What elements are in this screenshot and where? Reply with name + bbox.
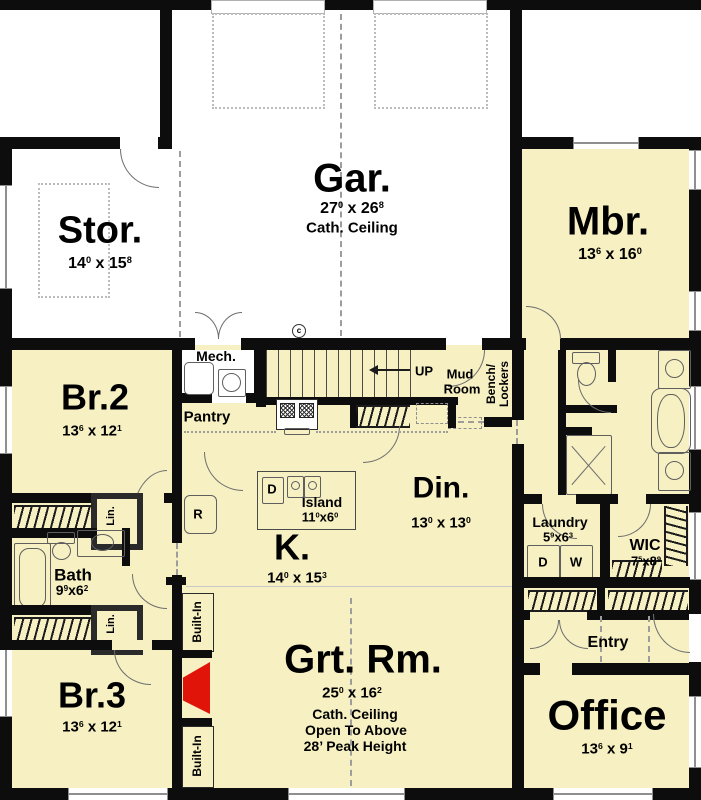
room-label-gar: Gar. [313, 159, 391, 200]
window [68, 788, 168, 800]
room-label-mbr: Mbr. [567, 202, 649, 243]
counter-edge [316, 431, 448, 433]
wall [566, 427, 592, 435]
burner-icon [280, 403, 295, 418]
toilet-icon [577, 362, 596, 386]
closet-rod-hatch [664, 506, 688, 566]
room-dim-dining: 130 x 130 [411, 515, 471, 530]
room-label-kitchen: K. [274, 530, 310, 567]
cased-opening [516, 420, 518, 444]
bathtub-icon [657, 394, 685, 448]
wall [608, 350, 616, 382]
wall [448, 397, 456, 428]
stair-direction-arrow [378, 369, 410, 371]
window [0, 185, 12, 289]
sink-icon [665, 359, 684, 378]
door-arc [120, 149, 159, 188]
sink-icon [91, 534, 114, 551]
linen-label: Lin. [105, 506, 117, 526]
room-dim-br2: 136 x 121 [62, 423, 122, 438]
wall [172, 575, 182, 788]
door-opening [526, 338, 560, 350]
wall [558, 350, 566, 412]
room-dim-laundry: 59x63 [543, 530, 573, 543]
window [553, 788, 653, 800]
room-label-laundry: Laundry [532, 515, 587, 529]
wall [524, 494, 542, 504]
room-note-grt: Open To Above [305, 723, 407, 737]
window [689, 150, 701, 190]
room-label-pantry: Pantry [184, 409, 231, 424]
wall [160, 0, 172, 149]
room-label-grt: Grt. Rm. [284, 640, 442, 681]
wall [572, 663, 690, 675]
toilet-icon [52, 542, 71, 560]
room-note-grt: 28’ Peak Height [304, 739, 407, 753]
mud-bench-outline [416, 403, 448, 424]
room-dim-wic: 75x89 [631, 554, 661, 567]
wall [510, 0, 522, 350]
refrigerator-label: R [193, 507, 202, 520]
sink-icon [665, 461, 684, 480]
window [0, 386, 12, 454]
room-dim-mbr: 136 x 160 [578, 247, 642, 263]
floor-plan: UP D W [0, 0, 701, 800]
wall [576, 494, 618, 504]
wall [512, 663, 540, 675]
wall [241, 338, 446, 350]
wall [512, 577, 690, 588]
cased-opening [176, 543, 178, 575]
room-label-stor: Stor. [58, 212, 142, 251]
built-in-label: Built-In [190, 601, 204, 642]
dishwasher-label: D [267, 482, 276, 495]
room-label-entry: Entry [588, 635, 629, 651]
cased-opening [458, 421, 484, 423]
room-dim-grt: 250 x 162 [322, 685, 382, 700]
garage-door-2 [373, 0, 487, 14]
door-opening [112, 640, 152, 650]
room-dim-bath: 99x62 [56, 583, 88, 597]
wall [177, 650, 212, 658]
door-opening [122, 566, 130, 606]
sink-icon [291, 481, 300, 490]
dryer-label: D [538, 555, 547, 568]
garage-door-track [374, 13, 488, 109]
room-label-island: Island [302, 495, 342, 509]
wall [0, 0, 701, 10]
ceiling-break-line [648, 616, 650, 662]
closet-rod-hatch [608, 590, 688, 612]
door-arc [195, 312, 219, 339]
room-label-wic: WIC [629, 538, 660, 554]
window [573, 137, 639, 149]
wall [512, 350, 524, 420]
stair-up-label: UP [415, 364, 433, 377]
front-door-opening [689, 614, 701, 662]
bathtub-icon [19, 548, 46, 608]
wall [512, 610, 530, 620]
stor-garage-divider [179, 151, 181, 337]
door-opening [120, 137, 158, 149]
room-label-mud: Mud [447, 367, 474, 380]
arrow-icon [369, 365, 378, 375]
water-heater-icon [184, 362, 214, 395]
room-dim-gar: 270 x 268 [320, 201, 384, 217]
window [0, 645, 12, 717]
room-dim-stor: 140 x 158 [68, 256, 132, 272]
room-label-mech: Mech. [196, 349, 236, 363]
room-dim-kitchen: 140 x 153 [267, 570, 327, 585]
room-label-office: Office [547, 695, 666, 738]
burner-icon [299, 403, 314, 418]
wall [600, 494, 610, 578]
wall [558, 413, 566, 495]
room-dim-br3: 136 x 121 [62, 719, 122, 734]
bench-lockers-label: Bench/ [484, 364, 498, 404]
linen-label: Lin. [105, 614, 117, 634]
closet-rod-hatch [528, 590, 596, 612]
room-label-br2: Br.2 [61, 380, 129, 417]
room-note-grt: Cath. Ceiling [312, 707, 398, 721]
door-arc [218, 312, 242, 339]
room-label-mud: Room [444, 382, 481, 395]
closet-rod-hatch [356, 405, 410, 428]
shower-icon [566, 435, 612, 495]
built-in-label: Built-In [190, 735, 204, 776]
wall [166, 577, 186, 585]
ceiling-break-line [186, 586, 512, 587]
garage-door-track [212, 13, 325, 109]
wall [484, 417, 512, 427]
stair-treads [266, 350, 412, 397]
garage-door-1 [211, 0, 325, 14]
wall [597, 588, 605, 610]
room-dim-island: 110x60 [302, 510, 339, 523]
bench-lockers-label: Lockers [497, 361, 511, 407]
room-dim-office: 136 x 91 [581, 741, 632, 756]
room-note-gar: Cath. Ceiling [306, 220, 398, 235]
window [689, 512, 701, 580]
window [288, 788, 405, 800]
keynote-c: c [292, 324, 306, 338]
closet-rod-hatch [14, 617, 92, 642]
sink-icon [308, 481, 317, 490]
washer-label: W [570, 555, 582, 568]
room-label-br3: Br.3 [58, 678, 126, 715]
room-label-dining: Din. [413, 474, 470, 505]
wall [0, 338, 195, 350]
furnace-icon [222, 373, 241, 392]
oven-door-icon [284, 428, 310, 435]
window [689, 696, 701, 768]
window [689, 291, 701, 331]
wall [172, 338, 182, 543]
counter-edge [184, 431, 276, 433]
wall [646, 494, 689, 504]
wall [177, 718, 212, 726]
